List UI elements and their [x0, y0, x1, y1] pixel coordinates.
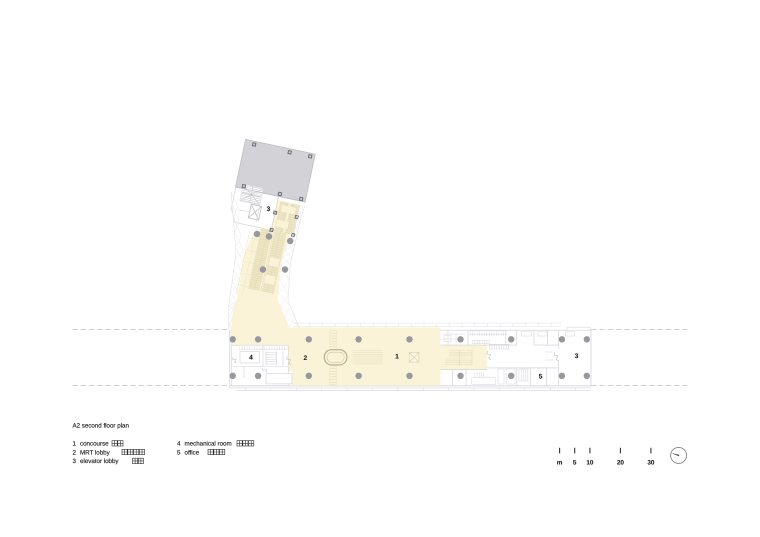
svg-text:elevator lobby: elevator lobby — [80, 458, 119, 465]
svg-text:3: 3 — [73, 458, 77, 465]
svg-text:20: 20 — [617, 460, 625, 467]
svg-text:MRT lobby: MRT lobby — [80, 449, 111, 456]
svg-text:10: 10 — [586, 460, 594, 467]
svg-text:concourse: concourse — [80, 441, 109, 448]
svg-text:1: 1 — [73, 441, 77, 448]
svg-text:1: 1 — [395, 354, 399, 361]
svg-text:mechanical room: mechanical room — [185, 441, 232, 448]
svg-text:A2 second floor plan: A2 second floor plan — [73, 423, 130, 430]
svg-text:2: 2 — [303, 355, 307, 362]
svg-text:4: 4 — [249, 355, 253, 362]
svg-text:5: 5 — [573, 460, 577, 467]
svg-text:office: office — [185, 449, 200, 456]
svg-text:30: 30 — [647, 460, 655, 467]
svg-text:5: 5 — [539, 374, 543, 381]
svg-text:3: 3 — [575, 353, 579, 360]
svg-text:5: 5 — [177, 449, 181, 456]
svg-text:3: 3 — [267, 206, 271, 213]
svg-text:2: 2 — [73, 449, 77, 456]
svg-text:4: 4 — [177, 441, 181, 448]
svg-text:m: m — [557, 460, 563, 467]
